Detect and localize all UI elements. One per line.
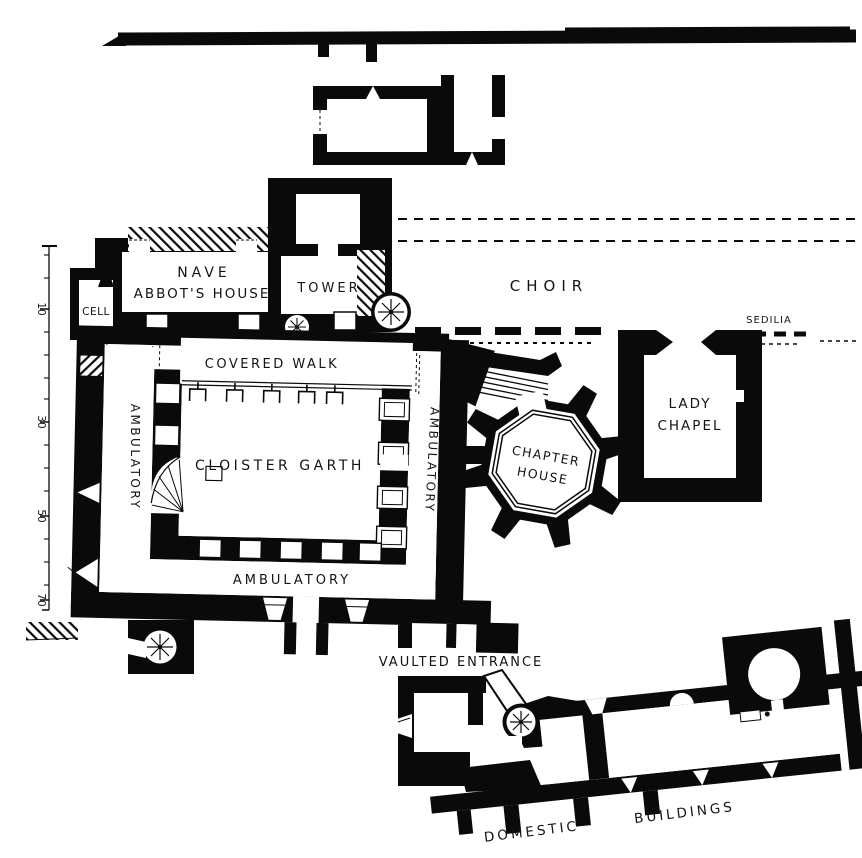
sedilia-label: SEDILIA	[746, 315, 792, 326]
ambulatory-south-label: AMBULATORY	[233, 573, 351, 588]
nave-abbots-house: NAVE ABBOT'S HOUSE	[95, 227, 292, 343]
scale-tick-10: 10	[35, 302, 47, 315]
scale-tick-30: 30	[35, 415, 47, 428]
tower-label: TOWER	[296, 281, 360, 296]
scale-tick-50: 50	[35, 509, 47, 522]
scale-tick-70: 70	[35, 593, 47, 606]
covered-walk-label: COVERED WALK	[205, 357, 339, 372]
choir-label: CHOIR	[510, 277, 588, 295]
ambulatory-west-label: AMBULATORY	[128, 404, 142, 511]
abbots-house-label: ABBOT'S HOUSE	[134, 286, 271, 302]
cell-label: CELL	[82, 306, 110, 318]
abbey-ground-plan: NAVE ABBOT'S HOUSE CELL TOWER	[0, 0, 862, 858]
stair-turret-sw	[128, 620, 194, 674]
nave-label: NAVE	[177, 265, 231, 281]
spiral-stair-entrance-icon	[503, 704, 540, 741]
cloister-garth-label: CLOISTER GARTH	[195, 458, 365, 474]
vaulted-entrance-label: VAULTED ENTRANCE	[379, 655, 544, 670]
ground-hatching	[26, 622, 78, 640]
plan-drawing: NAVE ABBOT'S HOUSE CELL TOWER	[0, 0, 862, 858]
lady-chapel-label-2: CHAPEL	[657, 418, 722, 434]
spiral-stair-tower-icon	[371, 292, 411, 332]
lady-chapel-label-1: LADY	[669, 396, 712, 412]
lady-chapel: LADY CHAPEL	[618, 330, 762, 502]
